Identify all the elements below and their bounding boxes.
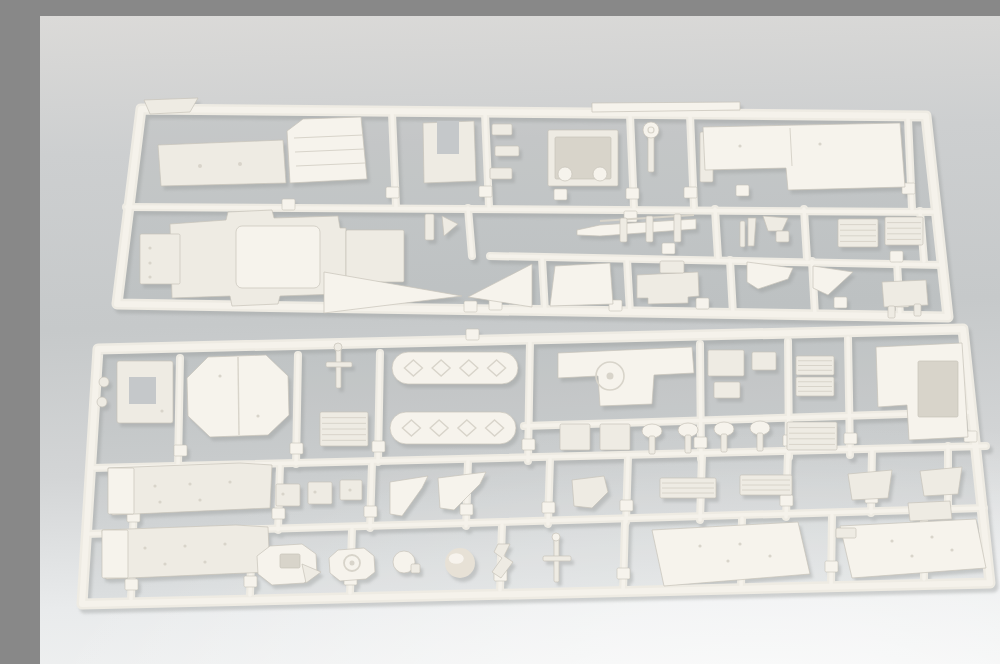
roof-recess [918,361,958,417]
rail-peg [99,377,109,387]
barrel-bracket [674,214,681,242]
hull-side-plate-rivet [238,162,242,166]
part-number-tag [460,504,473,515]
propeller-hub [643,122,659,138]
small-box [752,352,776,370]
part-number-tag [626,188,639,199]
part-number-tag [890,251,903,262]
part-number-tag [364,506,377,517]
part-number-tag [479,186,492,197]
part-number-tag [466,329,479,340]
step-box-top [660,261,684,273]
barrel-bracket [646,216,653,242]
part-number-tag [834,297,847,308]
part-number-tag [542,502,555,513]
deck-strip-rivet [188,482,191,485]
funnel-cylinder [593,167,607,181]
step-bar [908,501,952,521]
oval-peg-stem [649,436,655,454]
deck-panel-rivet [910,554,913,557]
hatch-small [600,424,630,450]
bracket-clip-rivet [281,492,284,495]
aa-gun-small [336,348,341,388]
oval-peg-stem [685,435,691,453]
rail-peg [97,397,107,407]
gun-carriage-hub [607,373,614,380]
part-number-tag [620,500,633,511]
barrel-bracket [620,218,627,242]
small-bracket [492,124,512,135]
bracket-clip-rivet [313,490,316,493]
part-number-tag [684,187,697,198]
tread-plate-oval [390,412,516,444]
u-bracket-opening [437,121,459,154]
mast-cross-arm [543,556,571,561]
octagonal-plate-rivet [256,414,259,417]
bracket-clip [308,482,332,504]
part-number-tag [386,187,399,198]
deck-strip-rivet [183,544,186,547]
turret-opening [280,554,300,568]
battery-box-rivet [160,409,163,412]
vent-box [787,422,837,450]
oval-peg-stem [757,433,763,451]
mount-plate [140,234,180,284]
part-number-tag [174,445,187,456]
small-bracket [490,168,512,179]
deck-grid-plate [287,117,367,183]
deck-panel-rivet [738,542,741,545]
davit-part [740,221,745,247]
top-rail-strip [592,102,740,112]
deck-panel-large [840,519,986,578]
mount-plate-rivet [148,275,151,278]
part-number-tag [662,243,675,254]
octagonal-plate-seam [238,357,239,435]
angled-plate [920,467,962,496]
upper-sprue [117,98,951,322]
mount-plate-rivet [148,246,151,249]
part-number-tag [780,495,793,506]
octagonal-plate-rivet [218,374,221,377]
clip-small [836,528,856,538]
tread-plate-oval [392,352,518,384]
deck-panel-rivet [726,559,729,562]
platform-leg [888,306,895,318]
part-number-tag [372,441,385,452]
hull-floor-center [236,226,320,288]
part-number-tag [696,298,709,309]
deck-panel-rivet [950,548,953,551]
part-number-tag [554,189,567,200]
part-number-tag [617,568,630,579]
part-number-tag [125,579,138,590]
superstructure-deck-rivet [818,142,821,145]
part-number-tag [844,433,857,444]
small-bracket [495,146,519,156]
deck-panel-rivet [930,535,933,538]
deck-panel-rivet [890,539,893,542]
aa-gun-small [326,362,352,367]
part-number-tag [272,508,285,519]
hull-side-plate [158,140,286,186]
deck-strip-rivet [198,498,201,501]
funnel-cylinder [558,167,572,181]
deck-strip-rivet [153,484,156,487]
platform-table [882,280,928,307]
part-number-tag [522,439,535,450]
part-number-tag [736,185,749,196]
deck-strip-rivet [143,546,146,549]
deck-panel-rivet [698,544,701,547]
aa-gun-small [334,343,342,351]
deck-strip-rivet [163,562,166,565]
winch-part [425,214,434,240]
small-box [714,382,740,398]
small-box [708,350,744,376]
deck-strip-rivet [228,480,231,483]
deck-strip-cap [102,530,128,578]
hull-panel-trapezoid [550,263,613,306]
corner-tab [144,98,198,114]
deck-strip-rivet [223,542,226,545]
part-number-tag [694,437,707,448]
lower-sprue [82,329,993,608]
bracket-pad [776,231,789,242]
oval-peg-stem [721,434,727,452]
bracket-clip [276,484,300,506]
part-number-tag [464,301,477,312]
vent-plate [885,217,923,245]
part-number-tag [282,199,295,210]
cylinder-drum-notch [411,564,420,573]
angled-plate [848,470,892,500]
vent-plate [838,219,878,247]
deck-strip-cap [108,468,134,514]
superstructure-deck-rivet [738,144,741,147]
mount-plate-rivet [148,261,151,264]
platform-leg [914,304,921,316]
part-number-tag [244,576,257,587]
side-plate-small [346,230,404,282]
part-number-tag [825,561,838,572]
part-number-tag [290,443,303,454]
deck-strip-rivet [158,500,161,503]
hatch-small [560,424,590,450]
hull-side-plate-rivet [198,164,202,168]
mast-top [552,533,560,541]
sprues-scene-svg [40,16,1000,664]
bracket-clip-rivet [348,488,351,491]
deck-strip-rivet [203,560,206,563]
turret-round-hub [350,561,355,566]
model-kit-sprues-photo [40,16,1000,664]
battery-box-opening [129,377,156,404]
deck-panel-rivet [768,554,771,557]
